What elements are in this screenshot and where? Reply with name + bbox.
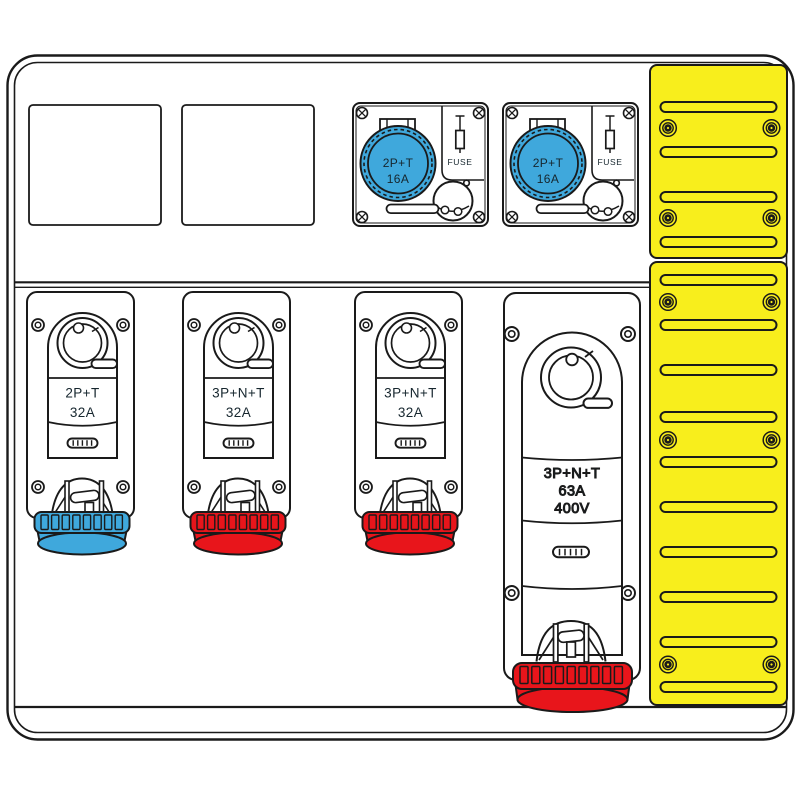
socket-rating-line2: 16A [387,172,410,186]
socket-rating-line1: 3P+N+T [212,386,265,401]
vent-panel-top-section [650,65,787,258]
fuse-label: FUSE [447,157,472,167]
socket-unit-63a: 3P+N+T 63A 400V [504,293,640,712]
vent-grille [553,547,589,557]
socket-rating-line2: 63A [559,484,586,500]
distribution-board-diagram: 2P+T 16A FUSE 2P+T 16A FUSE 2P+T 32A 3P+… [0,0,800,800]
socket-rating-line2: 32A [226,405,251,420]
socket-rating-line1: 3P+N+T [384,386,437,401]
vent-panel [650,65,787,705]
blank-window-1 [29,105,161,225]
blank-window-2 [182,105,314,225]
socket-unit-32a-3: 3P+N+T 32A [355,292,462,555]
vent-panel-bottom-section [650,262,787,705]
socket-rating-line2: 16A [537,172,560,186]
switch-lever [584,399,613,408]
socket-unit-32a-2: 3P+N+T 32A [183,292,290,555]
socket-rating-line2: 32A [398,405,423,420]
socket-rating-line2: 32A [70,405,95,420]
socket-rating-line1: 2P+T [65,386,99,401]
socket-rating-line1: 3P+N+T [544,466,600,482]
socket-rating-line1: 2P+T [383,156,414,170]
socket-cap [35,512,130,555]
fuse-label: FUSE [597,157,622,167]
socket-rating-line1: 2P+T [533,156,564,170]
socket-rating-line3: 400V [554,501,589,517]
socket-cap [191,512,286,555]
socket-cap [363,512,458,555]
socket-unit-32a-1: 2P+T 32A [27,292,134,555]
socket-unit-16a-2: 2P+T 16A FUSE [503,103,638,226]
socket-cap [513,663,632,712]
socket-unit-16a-1: 2P+T 16A FUSE [353,103,488,226]
